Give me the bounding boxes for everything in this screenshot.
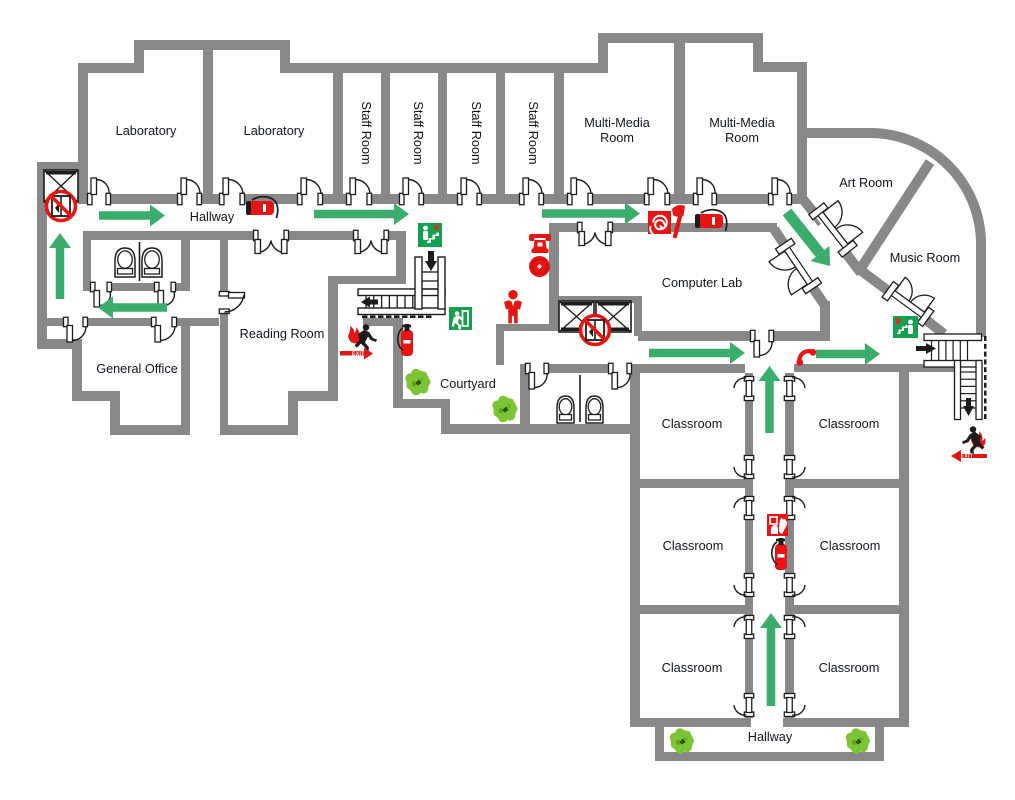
svg-text:Staff Room: Staff Room [526, 101, 540, 164]
svg-text:Room: Room [600, 131, 634, 145]
svg-text:Laboratory: Laboratory [244, 124, 305, 138]
svg-text:Classroom: Classroom [662, 661, 723, 675]
svg-text:Music Room: Music Room [890, 251, 961, 265]
svg-text:Reading Room: Reading Room [240, 327, 325, 341]
svg-text:Hallway: Hallway [190, 210, 235, 224]
svg-text:Courtyard: Courtyard [440, 377, 496, 391]
svg-text:Staff Room: Staff Room [359, 101, 373, 164]
svg-text:Staff Room: Staff Room [469, 101, 483, 164]
svg-text:Classroom: Classroom [662, 417, 723, 431]
svg-text:General Office: General Office [96, 362, 178, 376]
svg-text:EXIT: EXIT [352, 352, 365, 358]
svg-text:Laboratory: Laboratory [116, 124, 177, 138]
svg-text:Classroom: Classroom [819, 417, 880, 431]
svg-text:Hallway: Hallway [748, 730, 793, 744]
svg-text:Staff Room: Staff Room [411, 101, 425, 164]
svg-text:Classroom: Classroom [663, 539, 724, 553]
svg-text:Art Room: Art Room [839, 176, 893, 190]
svg-text:Multi-Media: Multi-Media [709, 116, 776, 130]
svg-text:Classroom: Classroom [820, 539, 881, 553]
svg-text:Classroom: Classroom [819, 661, 880, 675]
svg-text:Multi-Media: Multi-Media [584, 116, 651, 130]
svg-text:Computer Lab: Computer Lab [662, 276, 742, 290]
svg-text:Room: Room [725, 131, 759, 145]
svg-text:EXIT: EXIT [961, 454, 974, 460]
